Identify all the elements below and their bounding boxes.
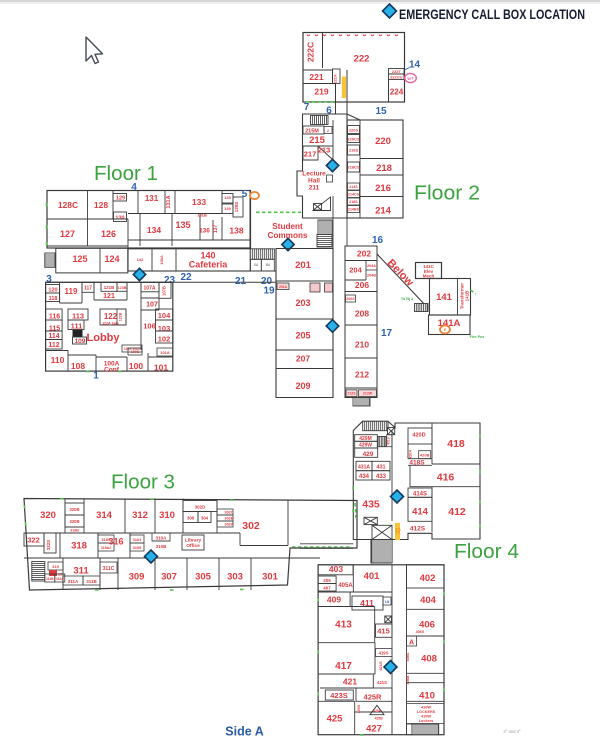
svg-text:435: 435 — [362, 499, 380, 511]
svg-text:106: 106 — [143, 322, 156, 331]
svg-text:131A: 131A — [166, 195, 172, 208]
svg-text:206S: 206S — [346, 297, 355, 301]
svg-text:212S: 212S — [347, 392, 356, 396]
svg-text:401: 401 — [364, 571, 381, 582]
svg-text:421S: 421S — [378, 661, 383, 671]
svg-text:101: 101 — [154, 363, 168, 373]
svg-text:322: 322 — [27, 536, 40, 545]
svg-text:311: 311 — [73, 566, 89, 577]
svg-text:BA: BA — [266, 263, 271, 267]
svg-text:Lecture: Lecture — [302, 171, 326, 178]
svg-text:127: 127 — [60, 229, 75, 239]
svg-text:316: 316 — [108, 537, 123, 547]
svg-text:129: 129 — [116, 196, 125, 202]
svg-text:222C: 222C — [306, 42, 316, 62]
svg-text:322S: 322S — [46, 540, 51, 551]
svg-text:3: 3 — [46, 274, 52, 285]
svg-text:410W: 410W — [421, 706, 431, 710]
svg-text:311C: 311C — [103, 566, 115, 572]
svg-text:w?: w? — [406, 76, 414, 81]
svg-text:423S: 423S — [330, 691, 348, 700]
svg-text:141B: 141B — [465, 290, 470, 302]
svg-text:310: 310 — [159, 510, 175, 521]
svg-text:4: 4 — [131, 182, 137, 193]
svg-text:122B: 122B — [119, 312, 123, 321]
svg-text:103: 103 — [158, 324, 171, 333]
svg-text:433: 433 — [376, 474, 387, 480]
svg-text:406: 406 — [419, 620, 435, 631]
svg-text:431: 431 — [376, 465, 385, 471]
svg-text:412S: 412S — [410, 526, 426, 533]
svg-text:107A: 107A — [144, 286, 156, 292]
svg-text:425: 425 — [327, 714, 344, 725]
svg-text:133: 133 — [192, 197, 206, 207]
svg-text:418: 418 — [447, 438, 465, 450]
svg-text:142: 142 — [137, 257, 144, 262]
svg-text:130: 130 — [115, 216, 124, 222]
svg-text:222T: 222T — [392, 69, 402, 74]
svg-text:405: 405 — [323, 578, 331, 583]
svg-text:126: 126 — [101, 229, 116, 239]
svg-text:207: 207 — [296, 354, 310, 364]
svg-text:307: 307 — [161, 572, 177, 583]
svg-text:201: 201 — [295, 260, 312, 271]
svg-text:420B: 420B — [420, 453, 430, 458]
svg-text:23: 23 — [164, 275, 176, 286]
svg-text:128: 128 — [94, 200, 108, 210]
svg-text:102: 102 — [158, 335, 171, 344]
svg-text:431A: 431A — [358, 465, 370, 471]
svg-text:3103: 3103 — [133, 538, 141, 542]
svg-text:313B: 313B — [46, 577, 54, 581]
svg-text:312: 312 — [132, 510, 148, 521]
svg-text:215: 215 — [309, 135, 326, 146]
svg-text:214: 214 — [375, 206, 392, 217]
svg-text:SA: SA — [254, 263, 259, 267]
svg-text:318B: 318B — [70, 529, 79, 533]
svg-text:1: 1 — [93, 371, 99, 382]
svg-text:416: 416 — [437, 472, 455, 484]
svg-text:408S: 408S — [406, 652, 410, 661]
svg-text:134: 134 — [147, 225, 161, 235]
svg-text:141: 141 — [436, 292, 453, 303]
svg-text:301: 301 — [262, 572, 279, 583]
svg-text:218: 218 — [376, 163, 392, 174]
svg-text:425A: 425A — [373, 709, 381, 713]
svg-text:204: 204 — [349, 266, 362, 275]
svg-text:135: 135 — [175, 220, 190, 230]
svg-text:5: 5 — [242, 189, 248, 200]
svg-text:106A: 106A — [159, 255, 164, 265]
svg-text:421S: 421S — [377, 680, 387, 685]
svg-text:208: 208 — [355, 309, 369, 319]
svg-text:Lobby: Lobby — [87, 332, 121, 344]
svg-text:115: 115 — [49, 326, 60, 333]
svg-text:418S: 418S — [409, 459, 425, 466]
svg-text:100: 100 — [129, 361, 143, 371]
svg-text:7: 7 — [304, 102, 310, 113]
svg-text:308: 308 — [187, 516, 195, 521]
svg-text:214BS: 214BS — [348, 208, 360, 212]
svg-text:218CS: 218CS — [347, 165, 360, 170]
svg-text:215M: 215M — [305, 129, 319, 135]
svg-text:Lockers: Lockers — [419, 719, 434, 723]
svg-text:311A: 311A — [68, 579, 79, 584]
svg-text:116: 116 — [49, 314, 60, 321]
svg-text:131B: 131B — [197, 213, 207, 218]
svg-text:Hall: Hall — [308, 178, 320, 185]
svg-text:Floor 3: Floor 3 — [111, 472, 175, 494]
svg-text:14: 14 — [409, 60, 421, 71]
svg-text:429S: 429S — [357, 704, 361, 713]
svg-text:112: 112 — [48, 342, 59, 349]
svg-text:427: 427 — [366, 724, 382, 735]
svg-text:211: 211 — [309, 185, 320, 192]
svg-text:409: 409 — [327, 595, 341, 605]
svg-text:L8: L8 — [385, 600, 389, 604]
svg-text:410W: 410W — [421, 715, 431, 719]
svg-text:302A: 302A — [224, 523, 233, 527]
svg-text:131: 131 — [145, 194, 159, 203]
svg-text:212: 212 — [355, 370, 369, 380]
svg-text:Side A: Side A — [225, 725, 263, 739]
svg-text:408: 408 — [421, 654, 437, 665]
svg-text:Conf: Conf — [104, 367, 120, 374]
svg-text:To Rj 2: To Rj 2 — [401, 297, 413, 301]
svg-text:216: 216 — [375, 183, 391, 194]
svg-text:119: 119 — [65, 287, 78, 296]
svg-text:107B: 107B — [162, 286, 167, 296]
svg-text:220: 220 — [375, 136, 391, 147]
svg-text:320B: 320B — [69, 519, 79, 524]
svg-text:110: 110 — [51, 355, 65, 365]
svg-text:410: 410 — [419, 691, 435, 702]
svg-text:407: 407 — [323, 586, 331, 591]
svg-text:22: 22 — [180, 272, 192, 283]
svg-text:419S: 419S — [379, 651, 389, 656]
svg-text:221A: 221A — [333, 74, 338, 84]
svg-text:311B: 311B — [86, 579, 97, 584]
svg-text:305: 305 — [195, 572, 212, 583]
svg-text:302D: 302D — [195, 505, 207, 510]
svg-text:303: 303 — [227, 572, 243, 583]
svg-text:139: 139 — [224, 206, 231, 211]
svg-text:111: 111 — [71, 322, 83, 331]
svg-text:3108: 3108 — [133, 546, 141, 550]
svg-text:413: 413 — [335, 620, 352, 631]
svg-text:EMERGENCY CALL BOX LOCATION: EMERGENCY CALL BOX LOCATION — [399, 7, 585, 22]
svg-text:219: 219 — [314, 87, 328, 97]
svg-text:Fire Pex: Fire Pex — [470, 335, 486, 339]
svg-text:222: 222 — [354, 54, 370, 65]
svg-text:403: 403 — [329, 564, 343, 574]
svg-text:108: 108 — [71, 361, 85, 371]
svg-text:310A: 310A — [156, 536, 168, 541]
svg-text:420D: 420D — [412, 433, 425, 439]
svg-text:431S: 431S — [387, 437, 391, 444]
svg-text:314: 314 — [96, 510, 113, 521]
svg-text:204B: 204B — [367, 274, 376, 278]
svg-text:138: 138 — [229, 226, 243, 236]
svg-text:420A: 420A — [408, 450, 413, 460]
svg-text:302: 302 — [242, 520, 260, 532]
svg-text:315: 315 — [52, 564, 59, 569]
svg-text:318A2: 318A2 — [101, 546, 112, 550]
svg-text:Office: Office — [186, 543, 200, 549]
svg-text:17: 17 — [381, 328, 393, 339]
svg-text:121: 121 — [103, 293, 115, 300]
svg-text:107: 107 — [146, 302, 158, 309]
svg-text:414: 414 — [412, 507, 429, 518]
svg-text:210: 210 — [355, 340, 369, 350]
svg-text:21: 21 — [235, 276, 247, 287]
svg-text:137: 137 — [213, 225, 219, 234]
svg-text:16: 16 — [372, 235, 384, 246]
svg-text:R: R — [395, 527, 401, 536]
svg-text:Floor 2: Floor 2 — [414, 183, 480, 205]
svg-text:412: 412 — [448, 506, 466, 518]
svg-text:122: 122 — [104, 312, 118, 321]
svg-text:201A: 201A — [279, 285, 288, 289]
svg-text:218S: 218S — [349, 200, 358, 204]
svg-text:214S: 214S — [349, 185, 358, 189]
svg-text:205: 205 — [295, 331, 310, 341]
svg-text:118: 118 — [49, 296, 58, 302]
svg-text:Mech: Mech — [423, 273, 435, 278]
svg-text:320B: 320B — [69, 507, 79, 512]
svg-text:124: 124 — [104, 254, 119, 264]
svg-text:309: 309 — [129, 572, 145, 583]
svg-text:123B: 123B — [118, 286, 127, 290]
svg-text:217: 217 — [304, 150, 317, 159]
svg-text:302B: 302B — [224, 517, 233, 521]
svg-text:6: 6 — [326, 106, 332, 117]
svg-text:320: 320 — [40, 510, 56, 521]
svg-text:139S: 139S — [234, 202, 239, 213]
svg-text:220CS: 220CS — [347, 137, 360, 142]
svg-text:104: 104 — [158, 311, 171, 320]
svg-text:417: 417 — [335, 661, 352, 672]
svg-text:421: 421 — [343, 677, 357, 687]
svg-text:122A Sale: 122A Sale — [102, 322, 119, 326]
svg-text:121B: 121B — [104, 285, 116, 290]
svg-text:114: 114 — [48, 333, 59, 340]
svg-text:A: A — [409, 640, 414, 647]
svg-text:415: 415 — [377, 627, 390, 636]
svg-text:224: 224 — [390, 88, 404, 97]
svg-text:429: 429 — [363, 451, 374, 458]
svg-text:216S: 216S — [349, 148, 359, 153]
svg-text:128C: 128C — [58, 200, 78, 210]
svg-text:125: 125 — [72, 254, 87, 264]
svg-text:406S: 406S — [416, 630, 425, 634]
svg-text:Floor 4: Floor 4 — [454, 541, 519, 563]
svg-text:404: 404 — [420, 595, 437, 606]
svg-text:425B: 425B — [375, 717, 384, 721]
svg-text:220S: 220S — [349, 128, 359, 133]
svg-text:304: 304 — [201, 516, 209, 521]
svg-text:414S: 414S — [413, 492, 427, 498]
svg-text:213: 213 — [318, 146, 331, 155]
svg-text:425R: 425R — [364, 693, 383, 702]
svg-text:113: 113 — [72, 312, 84, 321]
svg-text:202: 202 — [357, 249, 371, 259]
svg-text:206: 206 — [355, 280, 369, 290]
svg-text:214CS: 214CS — [348, 193, 360, 197]
svg-text:139: 139 — [224, 195, 231, 200]
svg-text:209: 209 — [295, 381, 310, 391]
svg-text:Student: Student — [272, 222, 303, 231]
svg-text:2: 2 — [327, 129, 329, 133]
svg-text:Floor 1: Floor 1 — [94, 163, 158, 185]
svg-text:204A: 204A — [367, 264, 376, 268]
svg-text:101A: 101A — [160, 350, 170, 355]
svg-text:318: 318 — [71, 541, 87, 552]
svg-text:136: 136 — [199, 228, 210, 235]
svg-text:222CU: 222CU — [390, 75, 403, 80]
svg-text:221: 221 — [309, 72, 323, 82]
svg-text:LOCKERS: LOCKERS — [417, 710, 436, 714]
svg-text:402: 402 — [420, 573, 436, 584]
svg-text:212W: 212W — [363, 392, 373, 396]
svg-text:302C: 302C — [224, 511, 233, 515]
svg-text:Cafeteria: Cafeteria — [189, 260, 229, 270]
svg-text:109: 109 — [75, 338, 86, 345]
svg-text:117: 117 — [84, 286, 92, 292]
svg-text:310B: 310B — [156, 544, 168, 549]
svg-text:15: 15 — [375, 106, 387, 117]
svg-text:Library: Library — [185, 538, 202, 544]
svg-text:100S: 100S — [131, 350, 140, 354]
svg-text:3° and 4°: 3° and 4° — [503, 729, 521, 734]
svg-text:203: 203 — [295, 298, 310, 308]
svg-text:405A: 405A — [338, 583, 353, 589]
svg-text:19: 19 — [263, 286, 275, 297]
svg-text:434: 434 — [359, 474, 370, 480]
